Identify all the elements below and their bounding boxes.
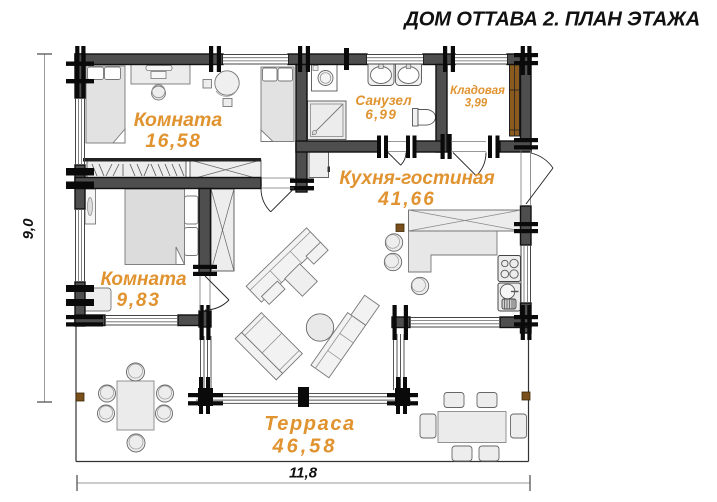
svg-text:16,58: 16,58 [145,130,201,152]
svg-text:9,83: 9,83 [117,290,161,311]
svg-text:11,8: 11,8 [289,465,318,482]
svg-text:6,99: 6,99 [365,107,397,122]
svg-text:Кухня-гостиная: Кухня-гостиная [339,168,494,189]
svg-text:3,99: 3,99 [465,98,488,110]
svg-text:41,66: 41,66 [377,189,436,210]
svg-text:9,0: 9,0 [20,218,37,240]
svg-text:46,58: 46,58 [271,436,337,458]
svg-text:Комната: Комната [134,109,223,131]
svg-text:Санузел: Санузел [355,93,412,108]
svg-text:Кладовая: Кладовая [450,85,505,97]
svg-text:ДОМ ОТТАВА 2. ПЛАН ЭТАЖА: ДОМ ОТТАВА 2. ПЛАН ЭТАЖА [402,9,700,31]
svg-text:Терраса: Терраса [264,413,356,435]
svg-text:Комната: Комната [100,269,187,290]
